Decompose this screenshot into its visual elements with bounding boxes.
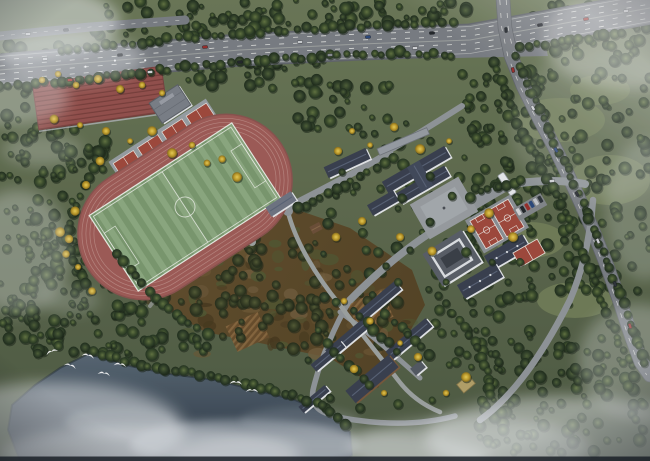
campus-aerial-rendering xyxy=(0,0,650,461)
rendering-canvas xyxy=(0,0,650,461)
bottom-edge-strip xyxy=(0,457,650,461)
color-grade xyxy=(0,0,650,461)
